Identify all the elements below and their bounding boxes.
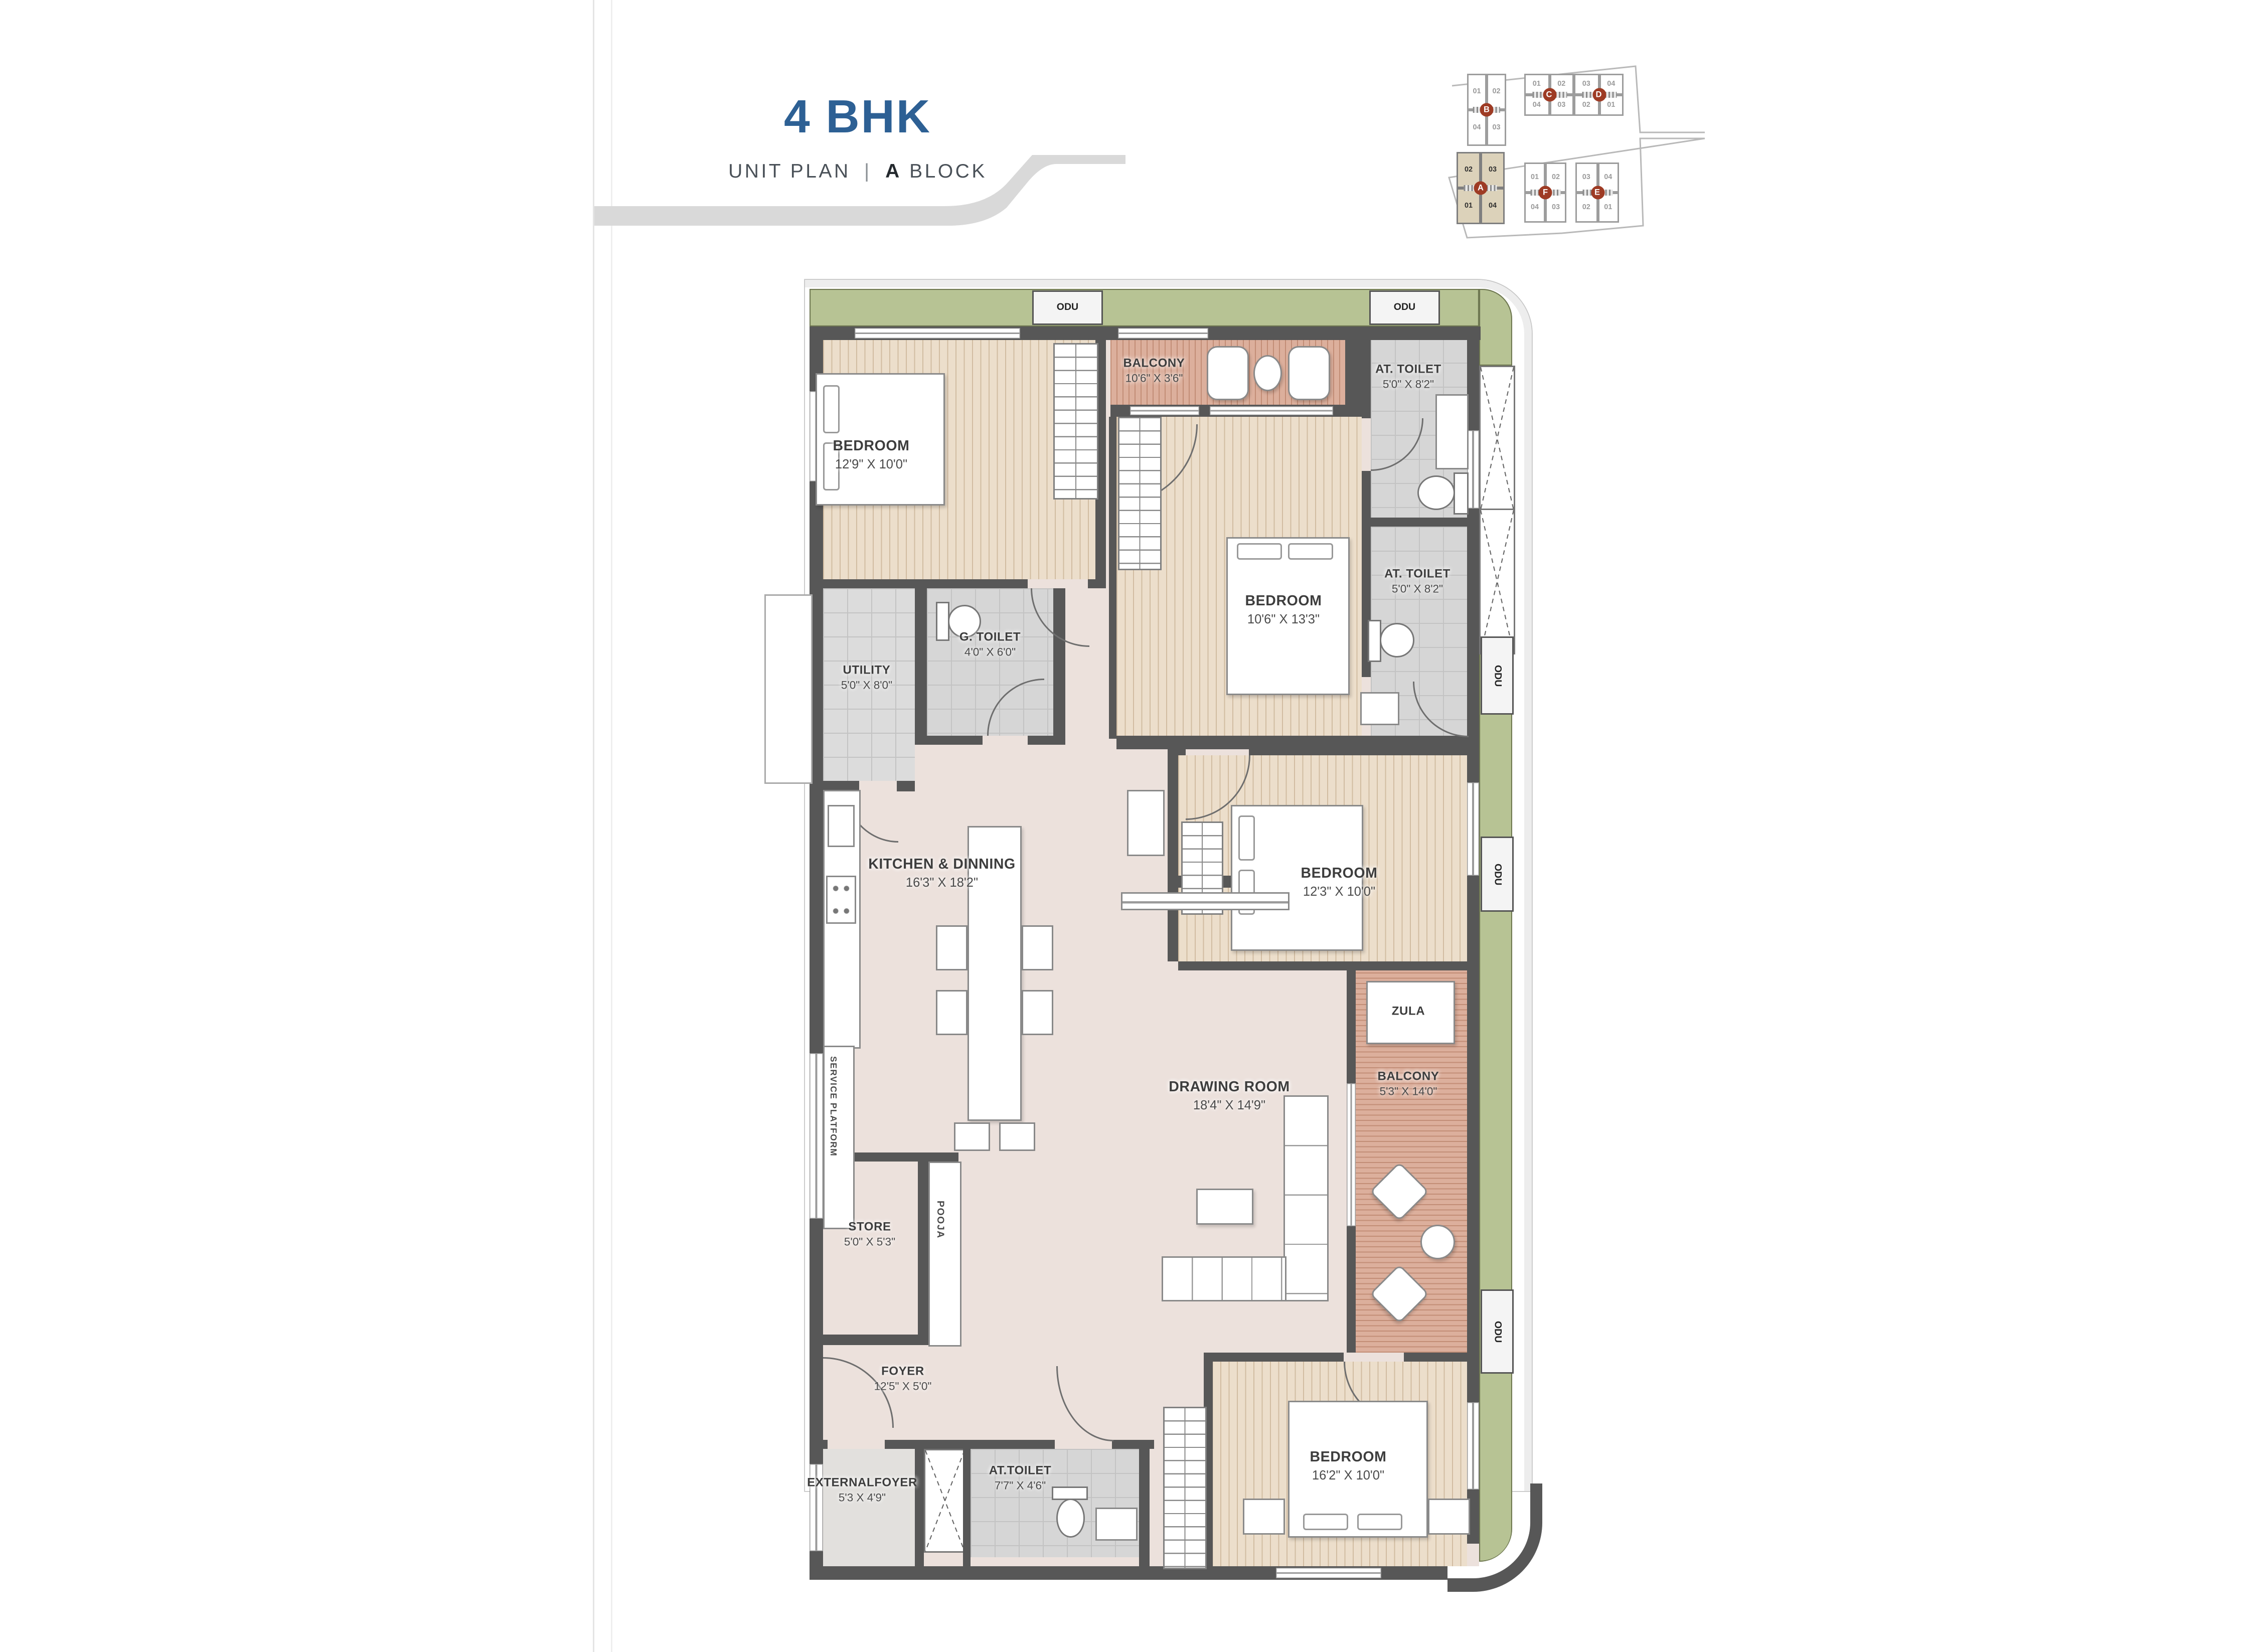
wall	[1467, 340, 1479, 1544]
wall	[1178, 961, 1467, 970]
wc-icon	[1052, 1486, 1088, 1500]
wall	[915, 1449, 924, 1566]
sofa-icon	[1162, 1256, 1286, 1301]
wardrobe-icon	[1118, 417, 1162, 570]
nightstand-icon	[1428, 1499, 1470, 1535]
page-title: 4 BHK	[707, 90, 1008, 144]
window-icon	[1210, 406, 1333, 415]
keyplan-block-A-highlighted: 0203 0104 A	[1457, 152, 1505, 224]
room-label-balcony-top: BALCONY10'6" X 3'6"	[1123, 356, 1185, 384]
wall	[1347, 1226, 1356, 1353]
wall	[1112, 1440, 1154, 1449]
chair-icon	[936, 925, 968, 970]
page-subtitle: UNIT PLAN | A BLOCK	[632, 159, 1083, 182]
basin-icon	[1360, 692, 1399, 725]
room-label-bedroom-1: BEDROOM12'9" X 10'0"	[833, 438, 909, 471]
balcony-table-icon	[1420, 1225, 1455, 1259]
wc-icon	[1454, 472, 1469, 515]
wall	[810, 1440, 828, 1449]
floor-plan: ODU ODU ODU ODU ODU BEDROOM12'9" X 10'0"…	[810, 286, 1547, 1610]
odu-label: ODU	[1492, 665, 1503, 686]
coffee-table-icon	[1196, 1189, 1253, 1225]
subtitle-divider: |	[858, 159, 878, 182]
room-label-kitchen-dining: KITCHEN & DINNING16'3" X 18'2"	[868, 857, 1016, 889]
wc-icon	[1056, 1499, 1085, 1538]
pillow-icon	[1288, 543, 1333, 560]
landscape-strip-right	[1479, 651, 1512, 1562]
wall	[1088, 579, 1106, 588]
nightstand-icon	[1243, 1499, 1285, 1535]
brochure-page: 4 BHK UNIT PLAN | A BLOCK 0102 0403 B 01…	[0, 0, 2254, 1652]
block-badge-B: B	[1480, 103, 1494, 117]
wall	[810, 326, 823, 1580]
wall	[963, 1449, 971, 1566]
wall	[1404, 1353, 1478, 1362]
wardrobe-icon	[1053, 343, 1098, 500]
wall	[927, 736, 983, 745]
zula-label: ZULA	[1392, 1005, 1425, 1018]
duct-shaft-icon	[1479, 366, 1515, 512]
cabinet-icon	[1127, 790, 1165, 856]
pillow-icon	[1303, 1514, 1348, 1530]
room-label-g-toilet: G. TOILET4'0" X 6'0"	[959, 630, 1021, 658]
wall	[1109, 417, 1116, 739]
wall	[1347, 970, 1356, 1083]
room-label-foyer: FOYER12'5" X 5'0"	[874, 1364, 932, 1392]
room-label-utility: UTILITY5'0" X 8'0"	[841, 663, 892, 691]
wall	[1168, 755, 1178, 961]
pooja-label: POOJA	[934, 1201, 945, 1239]
subtitle-unit-plan: UNIT PLAN	[728, 159, 851, 182]
room-label-at-toilet-3: AT.TOILET7'7" X 4'6"	[989, 1463, 1052, 1492]
window-icon	[1118, 328, 1208, 339]
wardrobe-icon	[1163, 1407, 1207, 1569]
wall	[915, 588, 927, 745]
floor-external-foyer	[810, 1449, 915, 1566]
odu-label: ODU	[1492, 1320, 1503, 1342]
block-badge-D: D	[1592, 88, 1605, 102]
window-icon	[1276, 1568, 1381, 1578]
room-label-bedroom-4: BEDROOM16'2" X 10'0"	[1310, 1449, 1386, 1482]
wall	[1139, 1449, 1150, 1566]
chair-icon	[954, 1122, 990, 1151]
wall	[1028, 736, 1053, 745]
wall	[823, 579, 1028, 588]
wall	[1249, 746, 1467, 755]
room-label-at-toilet-1: AT. TOILET5'0" X 8'2"	[1375, 362, 1441, 390]
odu-unit: ODU	[1481, 837, 1514, 912]
keyplan-block-F: 0102 0403 F	[1524, 162, 1566, 223]
balcony-table-icon	[1253, 355, 1282, 391]
room-label-bedroom-3: BEDROOM12'3" X 10'0"	[1301, 866, 1377, 898]
pillow-icon	[823, 385, 840, 433]
wc-icon	[1368, 620, 1381, 662]
window-icon	[1467, 430, 1479, 509]
swoosh-ribbon	[0, 0, 2254, 301]
window-icon	[1130, 406, 1199, 415]
wc-icon	[936, 602, 949, 641]
room-label-drawing-room: DRAWING ROOM18'4" X 14'9"	[1169, 1079, 1290, 1112]
room-label-bedroom-2: BEDROOM10'6" X 13'3"	[1245, 593, 1322, 626]
duct-shaft-icon	[1479, 509, 1515, 654]
window-icon	[1467, 1402, 1479, 1490]
balcony-chair-icon	[1207, 346, 1249, 400]
room-label-external-foyer: EXTERNALFOYER5'3 X 4'9"	[807, 1475, 917, 1504]
wall	[1204, 1353, 1344, 1362]
odu-unit: ODU	[1369, 290, 1440, 325]
wall	[1362, 339, 1371, 418]
room-label-at-toilet-2: AT. TOILET5'0" X 8'2"	[1384, 567, 1451, 595]
pillow-icon	[1237, 543, 1282, 560]
odu-label: ODU	[1394, 302, 1415, 313]
pooja-unit	[928, 1162, 961, 1347]
sink-icon	[828, 805, 855, 847]
odu-unit: ODU	[1481, 1289, 1514, 1374]
window-icon	[855, 328, 1020, 339]
block-badge-A: A	[1474, 182, 1488, 195]
sliding-window-icon	[1347, 1083, 1356, 1226]
window-icon	[810, 1053, 823, 1219]
wall	[1362, 518, 1467, 527]
chair-icon	[999, 1122, 1035, 1151]
wc-icon	[1417, 475, 1455, 510]
basin-icon	[1095, 1508, 1138, 1541]
room-label-store: STORE5'0" X 5'3"	[844, 1220, 895, 1248]
subtitle-block-letter: A	[885, 159, 902, 182]
service-platform-label: SERVICE PLATFORM	[828, 1056, 837, 1157]
block-badge-C: C	[1542, 88, 1556, 102]
subtitle-block-word: BLOCK	[909, 159, 987, 182]
keyplan-block-B: 0102 0403 B	[1467, 74, 1506, 146]
block-badge-F: F	[1539, 186, 1552, 200]
keyplan-block-C: 0102 0403 C	[1524, 74, 1574, 116]
room-label-balcony-right: BALCONY5'3" X 14'0"	[1378, 1069, 1439, 1097]
odu-unit: ODU	[1481, 636, 1514, 715]
pillow-icon	[1238, 815, 1255, 861]
chair-icon	[1022, 990, 1053, 1035]
wall	[1168, 746, 1186, 755]
odu-label: ODU	[1057, 302, 1078, 313]
balcony-chair-icon	[1288, 346, 1330, 400]
wall	[885, 1440, 1055, 1449]
block-badge-E: E	[1590, 186, 1604, 200]
chair-icon	[1022, 925, 1053, 970]
keyplan-block-D: 0304 0201 D	[1574, 74, 1624, 116]
utility-ledge	[764, 594, 813, 784]
window-icon	[1467, 782, 1479, 876]
wc-icon	[1380, 623, 1414, 657]
wall	[897, 781, 915, 791]
duct-shaft-icon	[924, 1449, 966, 1553]
basin-counter-icon	[1435, 394, 1469, 469]
sofa-icon	[1283, 1095, 1329, 1301]
tv-console-icon	[1121, 892, 1290, 910]
odu-label: ODU	[1492, 863, 1503, 885]
pillow-icon	[1357, 1514, 1402, 1530]
key-plan: 0102 0403 B 0102 0403 C 0304 0201 D 0203…	[1441, 36, 1712, 247]
hob-icon	[826, 876, 856, 924]
keyplan-block-E: 0304 0201 E	[1575, 162, 1619, 223]
wall	[918, 1162, 928, 1344]
odu-unit: ODU	[1032, 290, 1103, 325]
chair-icon	[936, 990, 968, 1035]
